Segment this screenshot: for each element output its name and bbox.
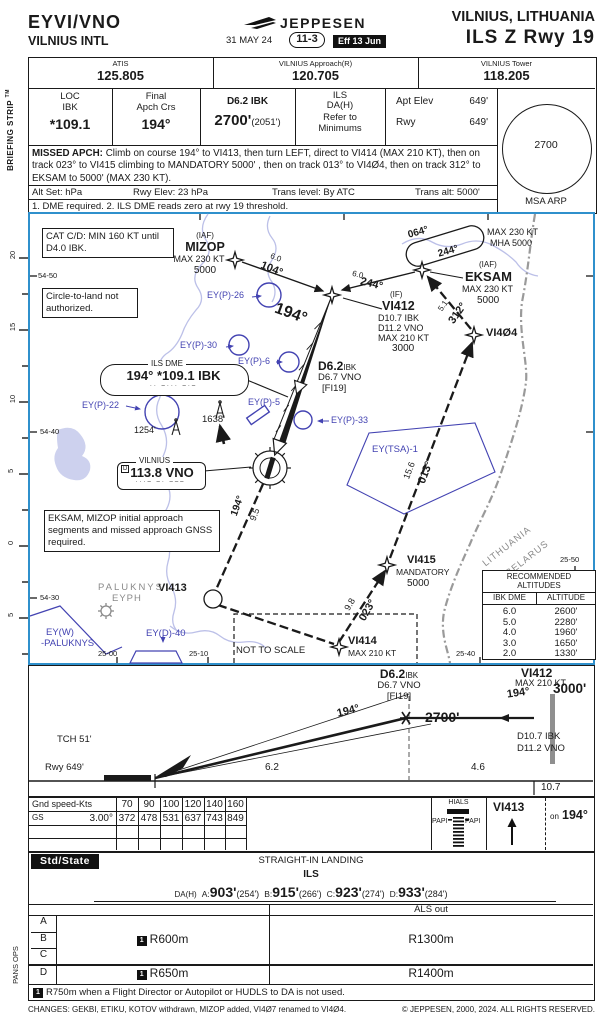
rec-alt-2: 2280' [537,618,595,628]
gs-100: 100 [160,800,182,811]
profile-graphics [29,666,593,795]
gnd-speed-label: Gnd speed-Kts [32,800,92,809]
profile-dist2: 4.6 [471,763,485,774]
tsa-label: EY(TSA)-1 [372,445,418,455]
eksam-speed: MAX 230 KT [462,285,513,294]
eksam-fix-label: EKSAM [465,270,512,284]
effective-date-badge: Eff 13 Jun [333,35,386,48]
mizop-speed: MAX 230 KT [154,255,244,264]
cat-c-height: (274') [362,889,385,899]
vi415-mandatory: MANDATORY [396,568,449,577]
scale-5b: 5 [7,613,15,617]
ils-dme-value: 194° *109.1 IBK [100,369,247,383]
rec-dme-3: 4.0 [483,628,536,638]
rec-alt-col2: ALTITUDE [537,594,595,602]
rwy-elev-hpa: Rwy Elev: 23 hPa [133,188,208,198]
highest-obstacle-arrow [220,426,224,444]
rvr-d-alsout: R1400m [269,967,593,980]
ey-w-paluknys-label: -PALUKNYS [41,639,94,649]
gs-angle: 3.00° [90,814,113,825]
lat-54-50: 54-50 [38,272,57,280]
lon-25-10: 25-10 [189,650,208,658]
trademark-label: TM [5,89,11,97]
lon-25-40: 25-40 [456,650,475,658]
apt-elev-value: 649' [469,97,488,108]
gs-90: 90 [138,800,160,811]
lon-25-50: 25-50 [560,556,579,564]
ey-d-40-label: EY(D)-40 [146,629,186,639]
fix-altitude-value: 2700' [214,112,251,129]
approach-chart-page: EYVI/VNO VILNIUS INTL JEPPESEN 31 MAY 24… [0,0,611,1024]
rec-alt-4: 1650' [537,639,595,649]
rec-alt-5: 1330' [537,649,595,659]
ils-dme-morse: ·· –··· –·– [100,383,247,389]
cat-d-da: 933' [398,884,425,900]
obstacle-1254: 1254' [134,426,156,435]
trans-alt: Trans alt: 5000' [415,188,480,198]
vor-compass-rose [249,447,291,489]
dah-label: DA(H) [174,890,196,899]
tower-frequency: 118.205 [418,69,595,83]
atis-frequency: 125.805 [28,69,213,83]
gs-637: 637 [182,814,204,825]
note-1-icon: 1 [137,936,147,946]
profile-intercept-altitude: 2700' [425,710,459,725]
profile-d62-ident: IBK [405,671,418,680]
gs-label: GS [32,814,44,822]
profile-tch: TCH 51' [57,735,92,745]
rvr-d-value: R650m [150,966,189,980]
d62-name: D6.2 [318,359,343,373]
chart-date: 31 MAY 24 [226,36,272,46]
profile-d62-label: D6.2IBK [349,668,449,681]
atis-label: ATIS [28,60,213,68]
rec-dme-1: 6.0 [483,607,536,617]
vi414-fix-label: VI414 [348,636,377,648]
row-cat-b: B [31,934,56,945]
minimums-ils-label: ILS [29,870,593,881]
hials-label: HIALS [431,799,486,806]
profile-dme2: D11.2 VNO [517,744,565,754]
profile-view: D6.2IBK D6.7 VNO [FI19] VI412 MAX 210 KT… [28,665,595,797]
ey-p-33-label: EY(P)-33 [331,416,368,425]
note-1-icon-foot: 1 [33,988,43,998]
briefing-strip-label: BRIEFING STRIP TM [6,55,15,205]
chart-index: 11-3 [289,32,325,48]
obstacle-1638: 1638' [202,415,225,425]
ma-dashed-line [545,798,547,850]
profile-d62-fi19: [FI19] [349,692,449,702]
loc-ident: IBK [28,103,112,113]
gs-160: 160 [225,800,246,811]
cat-b-da: 915' [272,884,299,900]
cat-b-height: (266') [299,889,322,899]
approach-label: VILNIUS Approach(R) [213,60,418,68]
lake-shape [54,428,90,481]
gs-372: 372 [116,814,138,825]
lon-25-00: 25-00 [98,650,117,658]
procedure-title: ILS Z Rwy 19 [466,28,595,48]
ey-p-26-label: EY(P)-26 [207,291,244,300]
eyph-label: EYPH [112,594,142,604]
rvr-abc: 1R600m [56,933,269,946]
vor-morse: ···– –· ––– [117,479,204,485]
fix-stars [204,252,482,655]
copyright-note: © JEPPESEN, 2000, 2024. ALL RIGHTS RESER… [402,1006,595,1014]
loc-frequency: *109.1 [28,117,112,132]
ma-on-label: on [550,813,559,821]
note-1-icon-d: 1 [137,970,147,980]
ey-p-5-label: EY(P)-5 [248,398,280,407]
rec-alt-1: 2600' [537,607,595,617]
cat-a-height: (254') [236,889,259,899]
rvr-d: 1R650m [56,967,269,980]
cat-c-label: C: [327,889,336,899]
footnote-text: R750m when a Flight Director or Autopilo… [46,987,345,998]
gs-120: 120 [182,800,204,811]
rec-alt-col1: IBK DME [483,594,536,602]
cat-b-label: B: [264,889,272,899]
papi-left-label: PAPI [432,818,447,825]
d62-fi19: [FI19] [322,384,346,394]
d62-ident: IBK [343,363,356,372]
cat-d-height: (284') [425,889,448,899]
ey-p-6-label: EY(P)-6 [238,357,270,366]
eksam-altitude: 5000 [477,296,499,307]
minimums-section: Std/State STRAIGHT-IN LANDING ILS DA(H) … [28,852,595,1001]
cat-cd-note: CAT C/D: MIN 160 KT until D4.0 IBK. [42,228,174,258]
gs-140: 140 [204,800,225,811]
map-scale-ticks [14,212,28,665]
recommended-altitudes-table: RECOMMENDED ALTITUDES IBK DME ALTITUDE 6… [482,570,596,660]
ma-turn-fix: VI413 [493,801,524,814]
d62-fix-label: D6.2IBK [318,360,356,373]
final-label2: Apch Crs [112,103,200,113]
vi412-fix-label: VI412 [382,300,415,313]
rec-dme-4: 3.0 [483,639,536,649]
jeppesen-swoosh-icon [243,16,277,30]
final-label: Final [112,92,200,102]
rwy-elev-label: Rwy [396,118,415,129]
fix-altitude: 2700'(2051') [200,113,295,129]
hold-mha: MHA 5000 [490,239,532,248]
msa-arp-label: MSA ARP [497,197,595,207]
profile-dme1: D10.7 IBK [517,732,560,742]
profile-vi412-altitude: 3000' [553,682,586,696]
gs-743: 743 [204,814,225,825]
ey-w-label: EY(W) [46,628,74,638]
papi-right-label: PAPI [465,818,480,825]
scale-0: 0 [7,541,15,545]
briefing-strip-text: BRIEFING STRIP [6,100,15,171]
missed-approach-tracks [215,277,472,644]
rec-alt-title2: ALTITUDES [483,582,595,590]
chart-notes: 1. DME required. 2. ILS DME reads zero a… [32,202,288,212]
msa-altitude: 2700 [497,140,595,151]
mizop-fix-label: MIZOP [160,241,250,254]
rec-alt-3: 1960' [537,628,595,638]
circle-to-land-note: Circle-to-land not authorized. [42,288,138,318]
approach-lights-icon [431,807,486,850]
final-course: 194° [112,117,200,132]
scale-10: 10 [9,395,17,403]
mizop-altitude: 5000 [160,266,250,277]
rvr-abc-value: R600m [150,932,189,946]
ey-p-22-label: EY(P)-22 [82,401,119,410]
cat-a-da: 903' [210,884,237,900]
ey-p-30-label: EY(P)-30 [180,341,217,350]
chart-city: VILNIUS, LITHUANIA [452,10,595,25]
gnss-note: EKSAM, MIZOP initial approach segments a… [44,510,220,552]
vi415-altitude: 5000 [407,579,429,590]
approach-frequency: 120.705 [213,69,418,83]
row-cat-a: A [31,917,56,928]
rvr-abc-alsout: R1300m [269,933,593,946]
apt-elev-label: Apt Elev [396,97,433,108]
scale-15: 15 [9,323,17,331]
vi415-fix-label: VI415 [407,555,436,567]
paluknys-label: PALUKNYS [98,583,164,593]
missed-approach-text: MISSED APCH: Climb on course 194° to VI4… [32,148,492,185]
scale-20: 20 [9,251,17,259]
changes-note: CHANGES: GEKBI, ETIKU, KOTOV withdrawn, … [28,1006,346,1014]
gs-849: 849 [225,814,246,825]
missed-approach-label: MISSED APCH: [32,148,103,159]
alt-set: Alt Set: hPa [32,188,82,198]
gs-531: 531 [160,814,182,825]
vor-frequency: 113.8 VNO [122,466,202,480]
dah-line: DA(H) A:903'(254') B:915'(266') C:923'(2… [29,885,593,900]
profile-d62-name: D6.2 [380,667,405,681]
row-cat-c: C [31,950,56,961]
not-to-scale-label: NOT TO SCALE [236,646,305,656]
rwy-elev-value: 649' [469,118,488,129]
gs-70: 70 [116,800,138,811]
profile-rwy-elev: Rwy 649' [45,763,84,773]
vi404-fix-label: VI4Ø4 [486,328,517,340]
plan-view: CAT C/D: MIN 160 KT until D4.0 IBK. Circ… [28,212,595,665]
cat-c-da: 923' [335,884,362,900]
paluknys-airport-icon [98,603,114,619]
straight-in-label: STRAIGHT-IN LANDING [29,856,593,866]
rec-dme-2: 5.0 [483,618,536,628]
minimums-footnote: 1R750m when a Flight Director or Autopil… [33,988,345,998]
vi412-altitude: 3000 [392,344,414,355]
d62-vno: D6.7 VNO [318,373,361,383]
cat-a-label: A: [202,889,210,899]
ma-up-arrow-icon [505,818,519,846]
conversion-table: Gnd speed-Kts 70 90 100 120 140 160 GS 3… [28,797,595,852]
row-cat-d: D [31,968,56,979]
hold-speed: MAX 230 KT [487,228,538,237]
profile-dist1: 6.2 [265,763,279,774]
ils-refer2: Minimums [295,124,385,134]
ils-refer1: Refer to [295,113,385,123]
loc-label: LOC [28,92,112,102]
scale-5: 5 [7,469,15,473]
als-out-header: ALS out [269,905,593,915]
airport-name: VILNIUS INTL [28,35,109,48]
gs-478: 478 [138,814,160,825]
profile-d62-vno: D6.7 VNO [349,681,449,691]
fix-altitude-height: (2051') [251,117,280,128]
profile-dist-total: 10.7 [541,783,560,794]
jeppesen-logo: JEPPESEN [280,16,366,31]
lat-54-30: 54-30 [40,594,59,602]
ils-dah-label: DA(H) [295,101,385,111]
lat-54-40: 54-40 [40,428,59,436]
tower-label: VILNIUS Tower [418,60,595,68]
ma-course: 194° [562,809,588,822]
airport-icao: EYVI/VNO [28,13,121,32]
cat-d-label: D: [390,889,399,899]
rec-dme-5: 2.0 [483,649,536,659]
pans-ops-label: PANS OPS [12,930,20,1000]
vi414-speed: MAX 210 KT [348,649,396,658]
fix-label: D6.2 IBK [200,97,295,108]
trans-level: Trans level: By ATC [272,188,355,198]
